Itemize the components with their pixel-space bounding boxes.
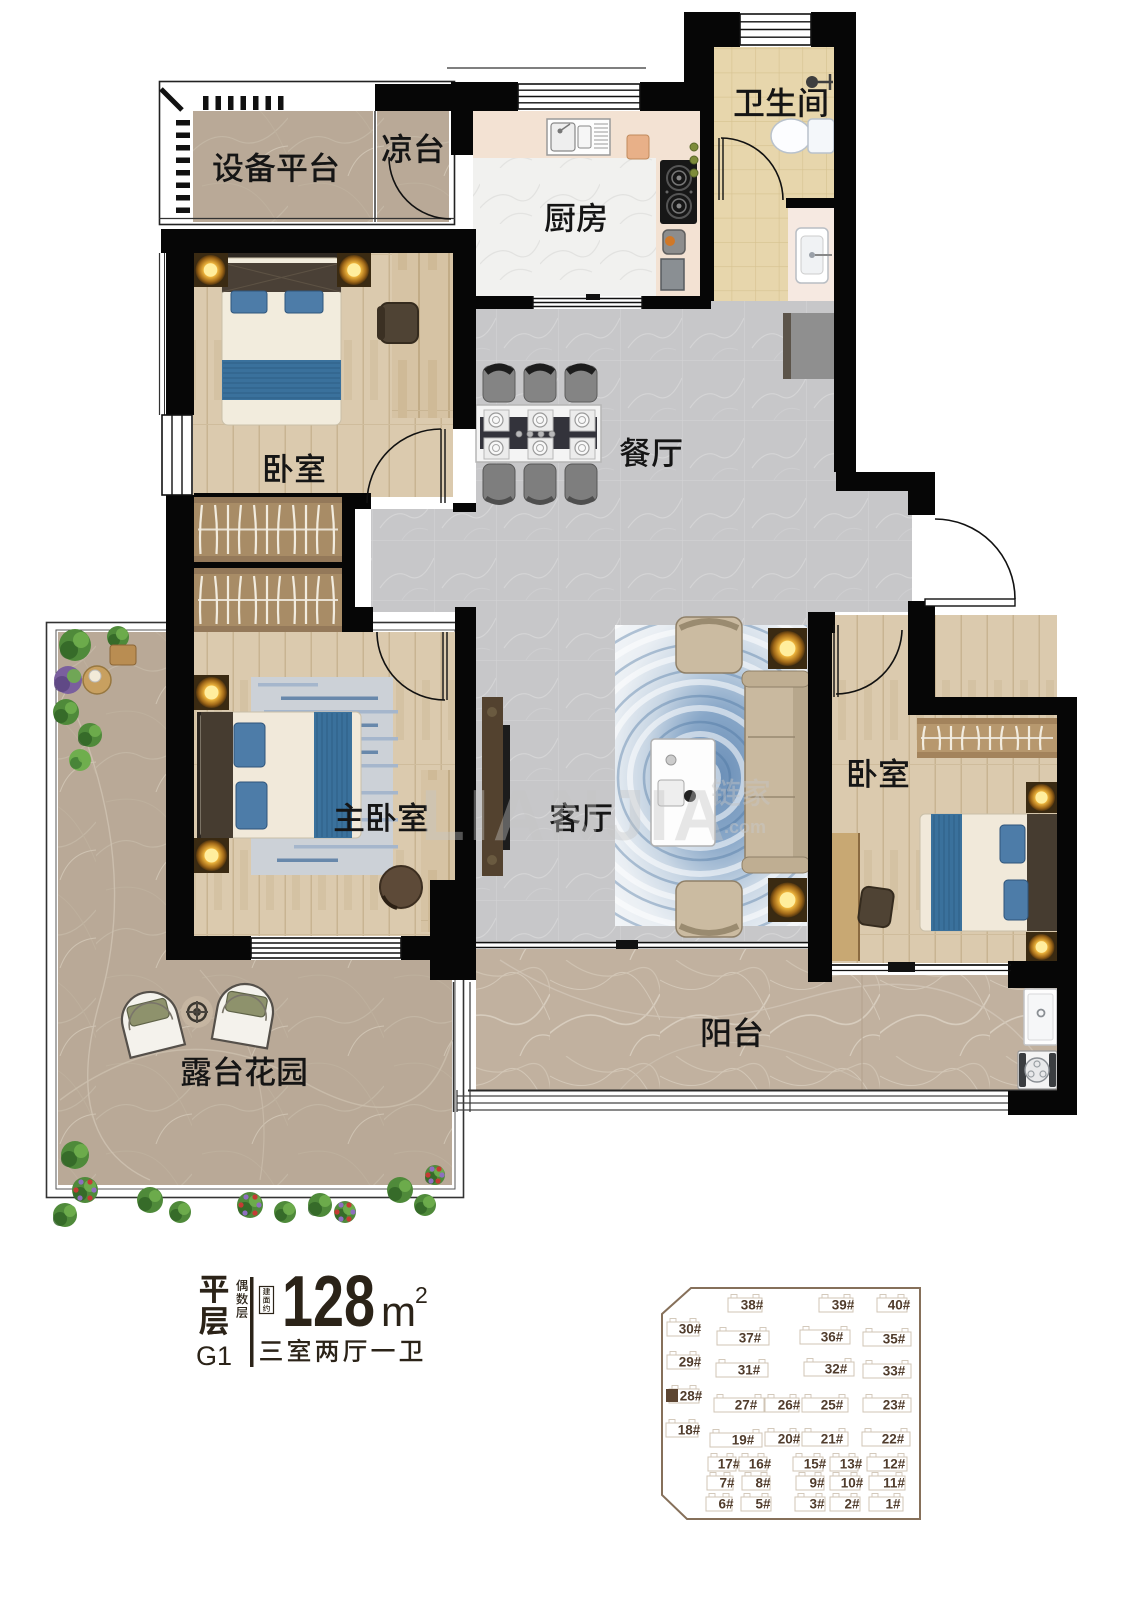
svg-text:2#: 2# [844,1497,860,1512]
svg-text:19#: 19# [732,1433,755,1448]
svg-text:23#: 23# [883,1398,906,1413]
svg-text:33#: 33# [883,1364,906,1379]
svg-text:31#: 31# [738,1363,761,1378]
svg-text:27#: 27# [735,1398,758,1413]
svg-text:21#: 21# [821,1432,844,1447]
svg-text:15#: 15# [804,1457,827,1472]
svg-text:11#: 11# [883,1476,905,1491]
svg-text:22#: 22# [882,1432,905,1447]
svg-text:10#: 10# [841,1476,864,1491]
svg-text:17#: 17# [718,1457,741,1472]
svg-text:20#: 20# [778,1432,801,1447]
svg-text:30#: 30# [679,1322,702,1337]
svg-text:32#: 32# [825,1362,848,1377]
svg-text:.com: .com [724,817,766,837]
svg-text:G1: G1 [196,1341,232,1371]
svg-text:128: 128 [282,1262,375,1342]
svg-text:13#: 13# [840,1457,863,1472]
svg-text:LIANJIA: LIANJIA [421,776,729,856]
svg-text:3#: 3# [809,1497,825,1512]
svg-text:6#: 6# [718,1497,734,1512]
svg-text:18#: 18# [678,1423,701,1438]
svg-text:16#: 16# [749,1457,772,1472]
svg-text:35#: 35# [883,1332,906,1347]
svg-text:8#: 8# [755,1476,771,1491]
svg-text:5#: 5# [755,1497,771,1512]
svg-text:28#: 28# [680,1389,703,1404]
svg-text:7#: 7# [719,1476,735,1491]
svg-text:36#: 36# [821,1330,844,1345]
svg-text:1#: 1# [885,1497,901,1512]
svg-text:m: m [381,1288,416,1335]
svg-text:40#: 40# [888,1298,911,1313]
svg-text:2: 2 [415,1282,428,1308]
svg-text:37#: 37# [739,1331,762,1346]
svg-text:25#: 25# [821,1398,844,1413]
svg-text:9#: 9# [809,1476,825,1491]
svg-text:12#: 12# [883,1457,906,1472]
svg-text:26#: 26# [778,1398,801,1413]
svg-text:39#: 39# [832,1298,855,1313]
svg-text:29#: 29# [679,1355,702,1370]
svg-text:38#: 38# [741,1298,764,1313]
